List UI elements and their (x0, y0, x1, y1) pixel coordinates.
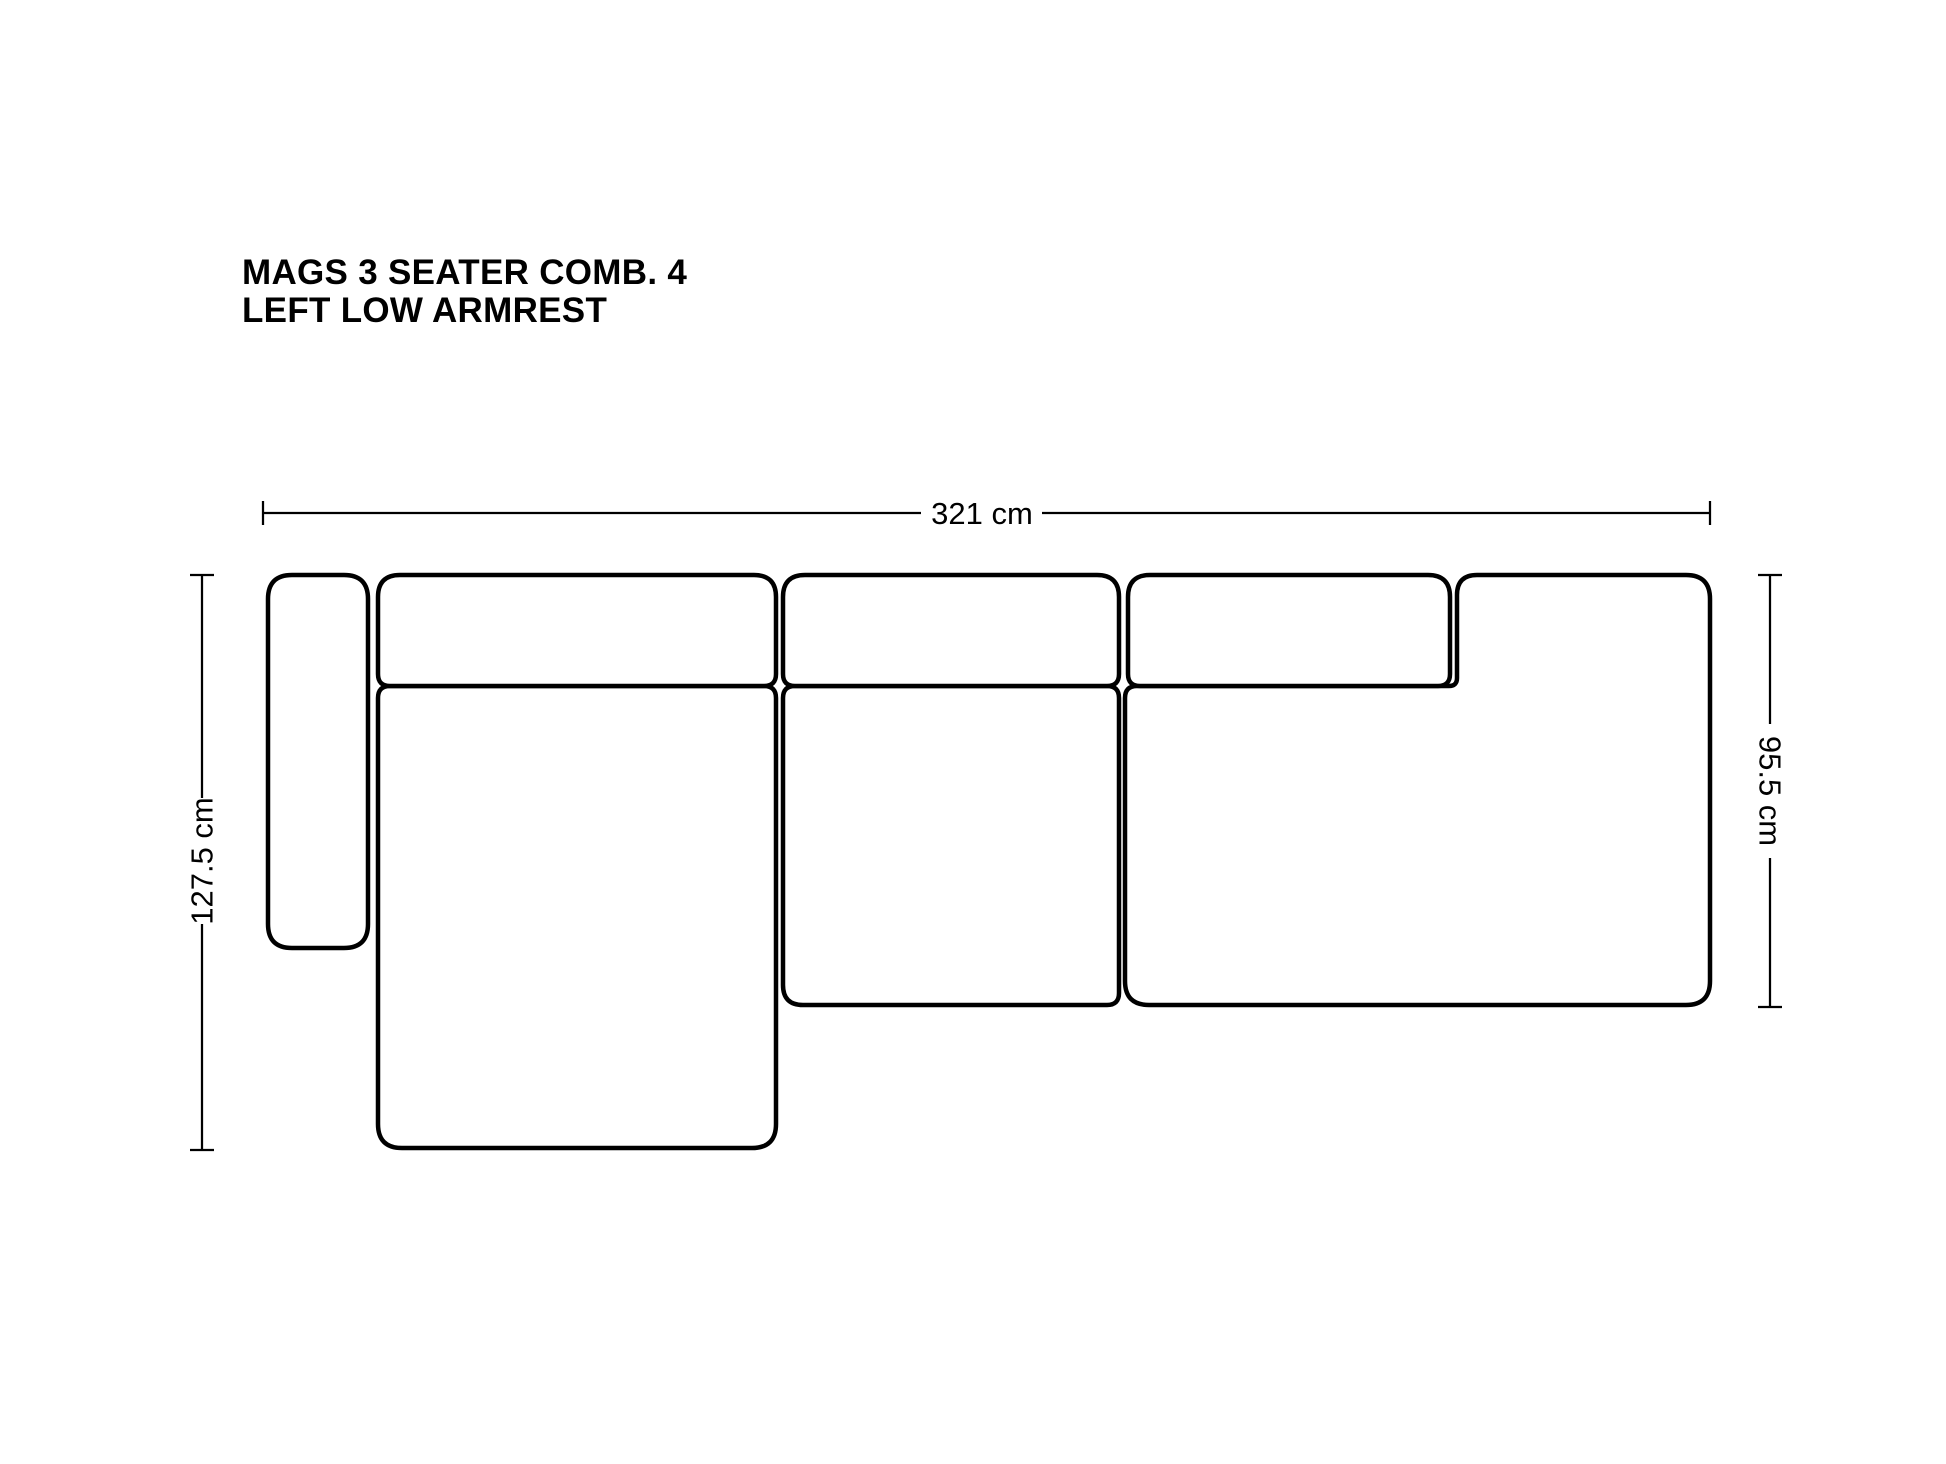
sofa-outline (268, 575, 1710, 1148)
title-block: MAGS 3 SEATER COMB. 4 LEFT LOW ARMREST (242, 253, 687, 330)
module-left-low-armrest (268, 575, 368, 948)
right-depth-dimension: 95.5 cm (1753, 575, 1788, 1007)
sofa-dimension-diagram: MAGS 3 SEATER COMB. 4 LEFT LOW ARMREST (0, 0, 1946, 1464)
product-title-line1: MAGS 3 SEATER COMB. 4 (242, 253, 687, 292)
module-back-cushion-left (378, 575, 776, 686)
left-depth-dimension-label: 127.5 cm (185, 797, 220, 925)
right-depth-dimension-label: 95.5 cm (1753, 736, 1788, 846)
width-dimension-label: 321 cm (931, 496, 1033, 531)
module-middle-seat (783, 686, 1119, 1005)
module-back-cushion-middle (783, 575, 1119, 686)
width-dimension: 321 cm (263, 496, 1710, 531)
sofa-dimension-page: MAGS 3 SEATER COMB. 4 LEFT LOW ARMREST (0, 0, 1946, 1464)
module-chaise-seat (378, 686, 776, 1148)
module-back-cushion-right (1128, 575, 1450, 686)
product-title-line2: LEFT LOW ARMREST (242, 291, 607, 330)
left-depth-dimension: 127.5 cm (185, 575, 220, 1150)
